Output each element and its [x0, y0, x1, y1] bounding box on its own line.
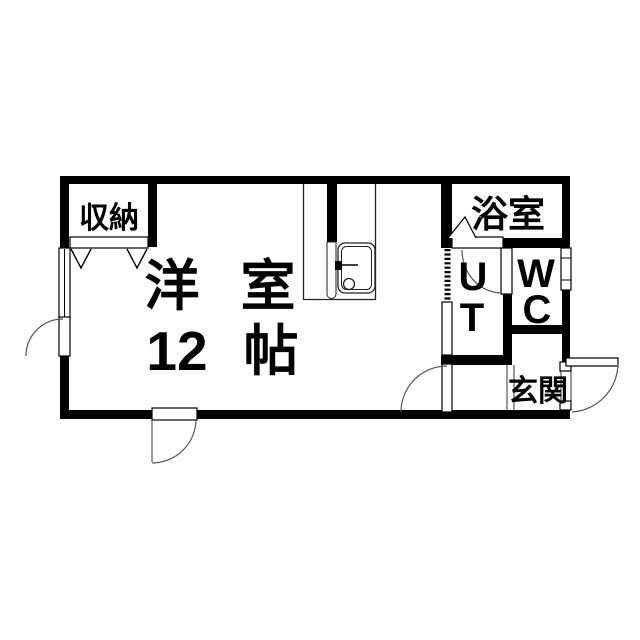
left-door-swing-arc	[26, 319, 63, 356]
main-room-label-line1-b: 室	[240, 255, 295, 317]
kitchen-counter-outline	[304, 184, 376, 300]
closet-door-threshold	[70, 237, 148, 248]
front-door-panel	[566, 358, 618, 366]
main-room-label-line2-a: 12	[146, 320, 207, 382]
wall-left-lower	[60, 356, 69, 419]
wall-bottom-right	[197, 410, 570, 419]
bottom-door-panel	[152, 408, 197, 420]
wall-bottom-left	[60, 410, 152, 419]
bottom-door-swing-arc	[152, 420, 196, 463]
front-door-swing-arc	[572, 364, 618, 412]
utility-label-u: U	[459, 255, 488, 299]
closet-label: 収納	[79, 202, 139, 235]
kitchen-counter	[304, 184, 376, 300]
floor-plan-canvas: 収納 浴室 洋 室 12 帖 U T W C 玄関	[0, 0, 640, 640]
wall-left-upper	[60, 184, 69, 248]
entrance-label: 玄関	[508, 374, 568, 408]
hall-door-panel	[442, 364, 452, 412]
ut-wc-door-panel	[501, 248, 512, 294]
wall-top	[60, 176, 570, 184]
wall-kitchen-stub	[327, 184, 337, 242]
utility-label-t: T	[460, 296, 484, 340]
kitchen-counter-edge	[327, 242, 336, 299]
wall-right-mid	[562, 290, 570, 362]
faucet-icon	[335, 261, 342, 270]
toilet-label-c: C	[523, 288, 552, 332]
wall-bathroom-bottom	[503, 238, 562, 248]
main-room-label-line1-a: 洋	[144, 255, 199, 317]
wall-closet-right	[148, 184, 157, 247]
bathroom-door-threshold	[452, 237, 503, 248]
bathroom-label: 浴室	[471, 193, 545, 235]
floor-plan-drawing: 収納 浴室 洋 室 12 帖 U T W C 玄関	[0, 0, 640, 640]
wall-bathroom-left	[441, 184, 452, 248]
window-right	[561, 248, 571, 290]
closet-folding-door-symbol-left	[71, 249, 91, 268]
ut-left-door-panel	[442, 302, 452, 355]
left-door-panel	[59, 317, 70, 356]
main-room-label-line2-b: 帖	[243, 320, 298, 382]
wall-right-upper	[562, 184, 570, 248]
drain-icon	[344, 279, 355, 290]
kitchen-sink-inner	[342, 247, 372, 290]
hall-door-swing-arc	[401, 366, 447, 412]
windows	[59, 248, 571, 318]
